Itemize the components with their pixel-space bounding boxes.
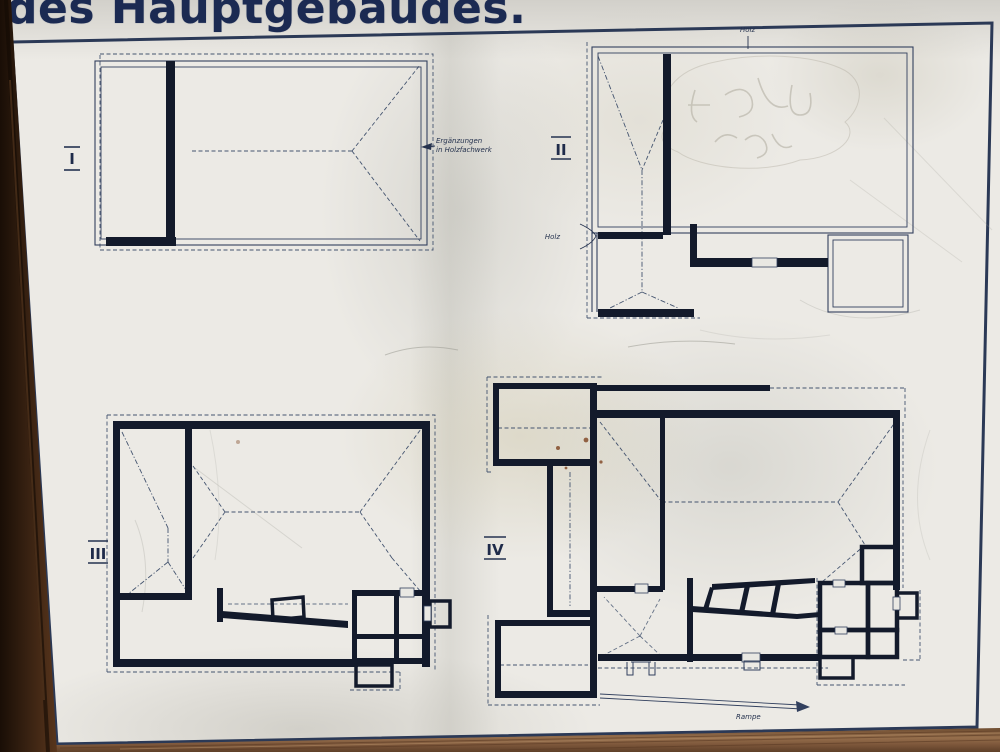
plan-1-roof-dashes (100, 54, 433, 250)
plan-3-roof-dashes (107, 415, 435, 690)
plan-2-door-opening (752, 258, 777, 267)
plan-1-outline (95, 61, 427, 245)
plan-drawing-canvas: Ergänzungen in Holzfachwerk I (0, 0, 1000, 752)
plan-2-walls (598, 54, 828, 317)
plan-4-door-openings (635, 580, 900, 662)
plan-4-drawing: Rampe IV (484, 377, 920, 721)
wood-frame-left (0, 0, 57, 752)
plan-2-roof-dashes (587, 42, 700, 318)
plan-1-drawing: Ergänzungen in Holzfachwerk I (64, 54, 493, 250)
roman-numeral-3: III (88, 541, 108, 563)
roman-numeral-4: IV (484, 537, 506, 559)
erganzungen-annotation: Ergänzungen in Holzfachwerk (421, 137, 493, 154)
photographed-sign: des Hauptgebäudes. (0, 0, 1000, 752)
holz-label-left: Holz (545, 233, 560, 241)
plan-3-drawing: III (88, 415, 450, 690)
scratch-marks (135, 118, 992, 612)
roman-numeral-2: II (551, 137, 571, 159)
svg-text:III: III (90, 545, 107, 563)
rampe-label: Rampe (736, 713, 761, 721)
svg-text:I: I (69, 150, 75, 168)
erganzungen-label-line1: Ergänzungen (436, 137, 482, 145)
holz-label-top: Holz (740, 26, 755, 34)
holz-annotation-top: Holz (740, 26, 755, 49)
plan-2-drawing: Holz Holz II (545, 26, 913, 318)
svg-text:II: II (555, 141, 566, 159)
wood-frame-bottom (0, 728, 1000, 752)
plan-4-room-cluster (820, 547, 917, 678)
pencil-graffiti (662, 56, 859, 168)
svg-text:IV: IV (486, 541, 504, 559)
rampe-annotation: Rampe (600, 694, 810, 721)
plan-2-outline (592, 47, 913, 312)
plan-1-walls (106, 61, 176, 246)
plan-4-walls (493, 383, 900, 698)
holz-annotation-left: Holz (545, 224, 596, 249)
erganzungen-label-line2: in Holzfachwerk (436, 146, 493, 154)
roman-numeral-1: I (64, 147, 80, 170)
